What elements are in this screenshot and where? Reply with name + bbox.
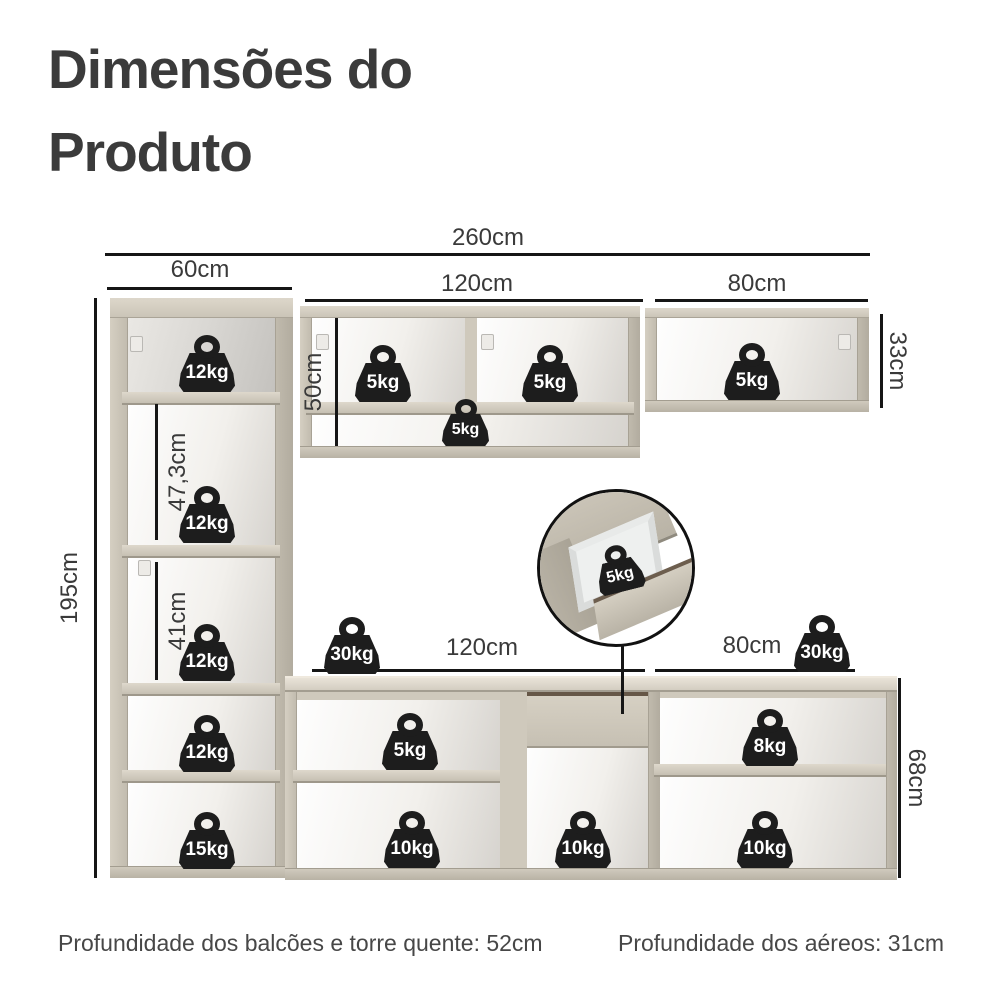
dim-line-upper-right-width: [655, 299, 868, 302]
weight-label: 5kg: [534, 372, 567, 394]
weight-label: 5kg: [394, 740, 427, 762]
weight-icon-counter-left-shelf: 5kg: [382, 713, 438, 770]
hinge-icon: [316, 334, 329, 350]
weight-icon-counter-left-total: 30kg: [324, 617, 380, 674]
footer-counters-depth: Profundidade dos balcões e torre quente:…: [58, 930, 543, 957]
counter-bottom-panel: [285, 868, 897, 880]
counter-left-shelf: [293, 770, 506, 783]
tower-left-wall: [110, 298, 128, 878]
counter-partition: [500, 692, 527, 880]
dim-label-upper-right-width: 80cm: [728, 270, 787, 298]
weight-handle-icon: [370, 345, 396, 369]
drawer-front: [527, 696, 648, 748]
weight-label: 30kg: [330, 644, 373, 666]
weight-label: 12kg: [185, 513, 228, 535]
weight-label: 10kg: [561, 838, 604, 860]
drawer-unit-right-wall: [648, 692, 660, 880]
weight-icon-tower-middle: 12kg: [179, 486, 235, 543]
weight-handle-icon: [194, 335, 220, 359]
upper-middle-divider: [465, 318, 477, 402]
weight-icon-tower-top: 12kg: [179, 335, 235, 392]
counter-left-wall: [285, 692, 297, 880]
weight-handle-icon: [809, 615, 835, 639]
magnifier-connector-line: [621, 644, 624, 714]
dim-line-tower-height: [94, 298, 97, 878]
upper-right-top-panel: [645, 308, 869, 318]
weight-label: 10kg: [743, 838, 786, 860]
weight-handle-icon: [537, 345, 563, 369]
dim-line-counter-height: [898, 678, 901, 878]
tower-shelf-3: [122, 683, 280, 696]
upper-right-left-wall: [645, 308, 657, 412]
upper-right-right-wall: [857, 308, 869, 412]
weight-label: 5kg: [452, 421, 480, 439]
weight-icon-counter-right-shelf: 8kg: [742, 709, 798, 766]
hinge-icon: [138, 560, 151, 576]
weight-icon-tower-lower: 12kg: [179, 624, 235, 681]
dim-line-tower-width: [107, 287, 292, 290]
weight-handle-icon: [757, 709, 783, 733]
tower-shelf-2: [122, 545, 280, 558]
weight-icon-counter-left-bottom: 10kg: [384, 811, 440, 868]
dim-label-counter-left-width: 120cm: [446, 634, 518, 662]
hinge-icon: [130, 336, 143, 352]
dim-label-counter-right-width: 80cm: [723, 632, 782, 660]
dim-line-upper-middle-width: [305, 299, 643, 302]
weight-label: 5kg: [367, 372, 400, 394]
dim-label-counter-height: 68cm: [902, 749, 930, 808]
upper-middle-top-panel: [300, 306, 640, 318]
weight-handle-icon: [455, 399, 477, 419]
weight-icon-counter-right-bottom: 10kg: [737, 811, 793, 868]
dim-line-tower-middle-section: [155, 404, 158, 540]
dim-line-tower-lower-section: [155, 562, 158, 680]
weight-label: 5kg: [605, 564, 636, 588]
weight-icon-upper-middle-left: 5kg: [355, 345, 411, 402]
footer-uppers-depth: Profundidade dos aéreos: 31cm: [618, 930, 944, 957]
upper-middle-right-wall: [628, 306, 640, 458]
weight-handle-icon: [399, 811, 425, 835]
weight-icon-tower-base-lower: 15kg: [179, 812, 235, 869]
hinge-icon: [481, 334, 494, 350]
counter-right-wall: [886, 692, 897, 880]
weight-label: 12kg: [185, 362, 228, 384]
weight-label: 5kg: [736, 370, 769, 392]
weight-handle-icon: [570, 811, 596, 835]
weight-icon-counter-right-total: 30kg: [794, 615, 850, 672]
dim-label-upper-middle-width: 120cm: [441, 270, 513, 298]
weight-icon-counter-middle-bottom: 10kg: [555, 811, 611, 868]
upper-middle-bottom-panel: [300, 446, 640, 458]
weight-label: 12kg: [185, 742, 228, 764]
dim-line-upper-middle-height: [335, 318, 338, 446]
dim-label-upper-middle-height: 50cm: [300, 353, 328, 412]
weight-handle-icon: [194, 715, 220, 739]
tower-top-panel: [110, 298, 293, 318]
weight-handle-icon: [339, 617, 365, 641]
weight-icon-tower-base-upper: 12kg: [179, 715, 235, 772]
dim-label-tower-width: 60cm: [171, 256, 230, 284]
product-dimensions-diagram: Dimensões do Produto: [0, 0, 1000, 1000]
weight-handle-icon: [739, 343, 765, 367]
upper-right-bottom-panel: [645, 400, 869, 412]
weight-label: 15kg: [185, 839, 228, 861]
dim-label-total-width: 260cm: [452, 224, 524, 252]
weight-label: 12kg: [185, 651, 228, 673]
weight-label: 30kg: [800, 642, 843, 664]
dim-label-upper-right-height: 33cm: [883, 332, 911, 391]
countertop: [285, 676, 897, 692]
weight-label: 10kg: [390, 838, 433, 860]
hinge-icon: [838, 334, 851, 350]
weight-handle-icon: [194, 812, 220, 836]
weight-label: 8kg: [754, 736, 787, 758]
weight-icon-upper-right: 5kg: [724, 343, 780, 400]
page-title: Dimensões do Produto: [48, 28, 538, 193]
drawer-detail-magnifier: 5kg: [537, 489, 695, 647]
weight-icon-upper-middle-shelf: 5kg: [442, 399, 489, 446]
tower-shelf-1: [122, 392, 280, 405]
weight-handle-icon: [194, 624, 220, 648]
counter-left-rail: [297, 692, 500, 700]
weight-handle-icon: [397, 713, 423, 737]
weight-handle-icon: [752, 811, 778, 835]
dim-label-tower-height: 195cm: [56, 552, 84, 624]
weight-handle-icon: [194, 486, 220, 510]
weight-icon-upper-middle-right: 5kg: [522, 345, 578, 402]
